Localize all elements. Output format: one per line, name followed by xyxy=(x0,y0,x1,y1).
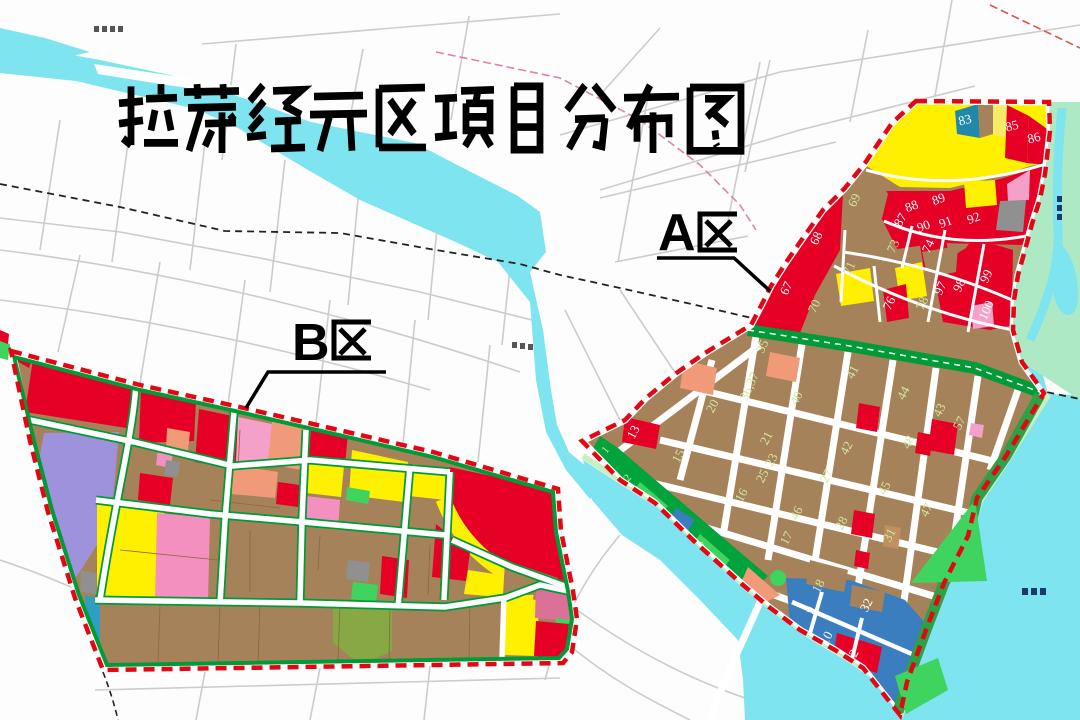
svg-text:A: A xyxy=(658,204,696,262)
svg-text:B: B xyxy=(292,314,330,372)
